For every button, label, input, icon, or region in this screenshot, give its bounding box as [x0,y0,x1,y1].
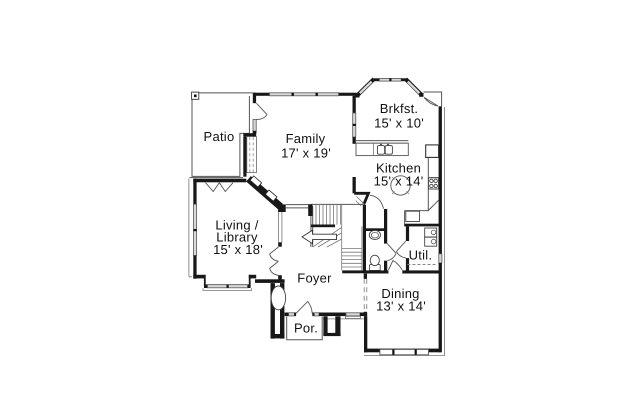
svg-text:Util.: Util. [409,248,433,263]
svg-text:Patio: Patio [204,129,235,144]
svg-text:Foyer: Foyer [297,271,332,286]
svg-text:15' x 10': 15' x 10' [374,116,424,131]
svg-text:Por.: Por. [294,321,318,336]
svg-text:15' x 18': 15' x 18' [213,242,263,257]
svg-text:Brkfst.: Brkfst. [380,101,419,116]
svg-text:15' x 14': 15' x 14' [374,174,424,189]
svg-text:Family: Family [286,131,326,146]
svg-text:17' x 19': 17' x 19' [281,146,331,161]
svg-text:13' x 14': 13' x 14' [376,299,426,314]
